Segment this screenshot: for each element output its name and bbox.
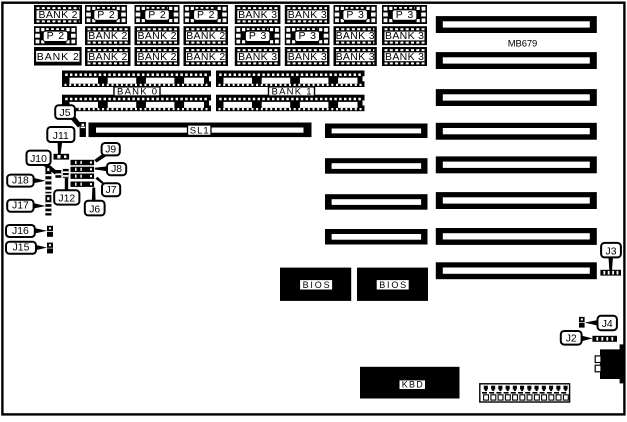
svg-text:J4: J4 [602, 319, 613, 330]
svg-text:BANK 3: BANK 3 [288, 51, 327, 63]
svg-text:BANK 3: BANK 3 [288, 9, 327, 21]
svg-text:P 3: P 3 [298, 30, 316, 42]
svg-text:BANK 2: BANK 2 [88, 30, 127, 42]
svg-text:BANK 1: BANK 1 [272, 86, 312, 97]
svg-text:BANK 0: BANK 0 [117, 86, 157, 97]
svg-text:KBD: KBD [402, 380, 424, 390]
svg-text:BANK 3: BANK 3 [238, 51, 277, 63]
svg-text:P 3: P 3 [396, 9, 414, 21]
svg-text:J9: J9 [105, 144, 116, 155]
svg-text:J8: J8 [111, 164, 122, 175]
svg-text:MB679: MB679 [508, 39, 538, 50]
svg-text:J2: J2 [566, 334, 577, 345]
svg-text:J16: J16 [12, 226, 29, 237]
svg-text:J10: J10 [30, 154, 47, 165]
svg-text:BANK 2: BANK 2 [138, 30, 177, 42]
svg-text:BANK 2: BANK 2 [138, 51, 177, 63]
svg-text:P 3: P 3 [346, 9, 364, 21]
svg-text:P 2: P 2 [47, 30, 65, 42]
svg-text:BANK 3: BANK 3 [336, 30, 375, 42]
svg-text:BANK 3: BANK 3 [385, 51, 424, 63]
svg-text:J11: J11 [53, 131, 69, 142]
svg-text:J5: J5 [60, 108, 71, 119]
svg-text:J18: J18 [12, 176, 29, 187]
svg-text:J12: J12 [58, 194, 75, 205]
svg-text:P 2: P 2 [97, 9, 115, 21]
svg-text:P 2: P 2 [148, 9, 166, 21]
svg-text:BIOS: BIOS [303, 280, 330, 290]
svg-text:BANK 2: BANK 2 [186, 51, 225, 63]
svg-text:BANK 2: BANK 2 [39, 9, 78, 21]
svg-text:P 3: P 3 [249, 30, 267, 42]
svg-text:J7: J7 [106, 185, 117, 196]
svg-text:SL1: SL1 [190, 126, 209, 137]
svg-text:BANK 2: BANK 2 [186, 30, 225, 42]
svg-text:P 2: P 2 [197, 9, 215, 21]
svg-text:BANK 3: BANK 3 [336, 51, 375, 63]
svg-text:J6: J6 [89, 204, 100, 215]
svg-text:J15: J15 [13, 243, 30, 254]
svg-text:J17: J17 [12, 201, 29, 212]
svg-text:J3: J3 [606, 246, 617, 257]
svg-text:BANK 2: BANK 2 [37, 51, 79, 63]
svg-text:BIOS: BIOS [379, 280, 406, 290]
svg-text:BANK 3: BANK 3 [385, 30, 424, 42]
svg-text:BANK 3: BANK 3 [238, 9, 277, 21]
svg-text:BANK 2: BANK 2 [88, 51, 127, 63]
